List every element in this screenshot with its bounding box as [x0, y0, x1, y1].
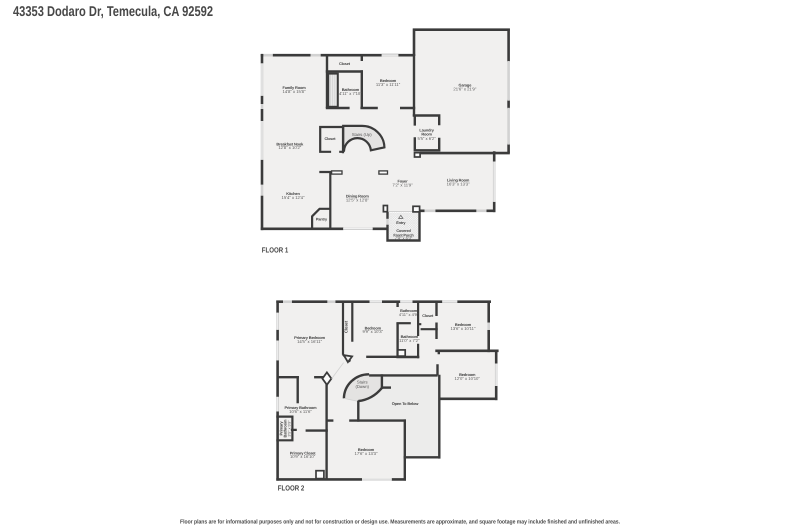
- svg-text:Floor plans are for informatio: Floor plans are for informational purpos…: [180, 519, 620, 526]
- svg-text:Open To Below: Open To Below: [392, 401, 420, 406]
- svg-text:13'6" x 10'11": 13'6" x 10'11": [451, 326, 476, 331]
- svg-text:Entry: Entry: [396, 221, 406, 225]
- svg-text:(Down): (Down): [355, 384, 369, 389]
- svg-text:Closet: Closet: [422, 314, 434, 318]
- svg-text:FLOOR 2: FLOOR 2: [278, 484, 305, 493]
- svg-text:10'9" x 16'10": 10'9" x 16'10": [290, 454, 316, 459]
- svg-text:14'5" x 16'11": 14'5" x 16'11": [297, 339, 322, 344]
- svg-text:17'6" x 13'3": 17'6" x 13'3": [355, 451, 378, 456]
- svg-text:Closet: Closet: [344, 320, 349, 333]
- svg-text:9'9" x 10'3": 9'9" x 10'3": [362, 329, 383, 334]
- svg-text:5'5" x 6'2": 5'5" x 6'2": [417, 136, 436, 141]
- svg-text:12'0" x 10'10": 12'0" x 10'10": [455, 376, 481, 381]
- svg-text:21'6" x 21'9": 21'6" x 21'9": [453, 86, 476, 91]
- svg-text:15'4" x 12'4": 15'4" x 12'4": [282, 195, 305, 200]
- svg-text:3'5" x 5'9": 3'5" x 5'9": [288, 420, 292, 437]
- svg-text:4'11" x 7'10": 4'11" x 7'10": [339, 91, 362, 96]
- svg-text:Closet: Closet: [339, 62, 351, 66]
- svg-text:11'0" x 7'2": 11'0" x 7'2": [399, 338, 420, 343]
- svg-text:11'3" x 11'11": 11'3" x 11'11": [376, 82, 401, 87]
- svg-text:14'8" x 15'8": 14'8" x 15'8": [283, 89, 306, 94]
- svg-text:Stairs (Up): Stairs (Up): [352, 132, 373, 137]
- svg-text:4'11" x 4'9": 4'11" x 4'9": [399, 312, 419, 317]
- svg-text:16'3" x 13'3": 16'3" x 13'3": [447, 182, 470, 187]
- svg-text:FLOOR 1: FLOOR 1: [262, 245, 289, 254]
- svg-text:12'8" x 10'2": 12'8" x 10'2": [278, 145, 301, 150]
- svg-text:Pantry: Pantry: [316, 217, 328, 221]
- svg-text:43353 Dodaro Dr, Temecula, CA: 43353 Dodaro Dr, Temecula, CA 92592: [13, 4, 213, 20]
- svg-text:7'4" x 6'3": 7'4" x 6'3": [395, 236, 413, 241]
- svg-text:12'5" x 12'8": 12'5" x 12'8": [346, 197, 369, 202]
- svg-text:Closet: Closet: [325, 137, 337, 141]
- svg-text:7'2" x 11'9": 7'2" x 11'9": [392, 183, 413, 188]
- svg-text:10'6" x 11'6": 10'6" x 11'6": [289, 409, 312, 414]
